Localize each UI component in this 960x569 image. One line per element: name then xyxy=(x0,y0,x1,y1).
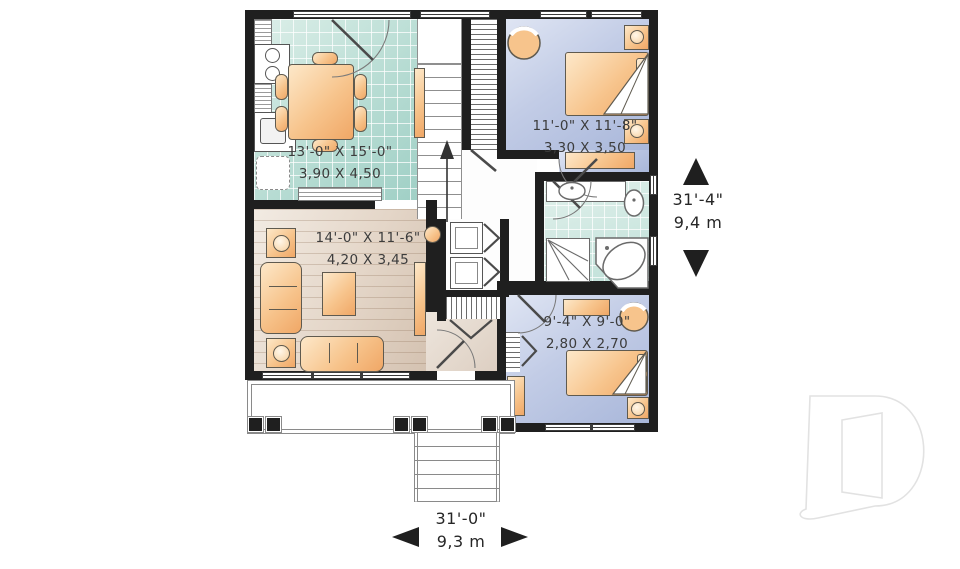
sofa-cushion-line xyxy=(269,309,297,310)
pillow xyxy=(636,58,647,84)
coat-closet xyxy=(446,297,500,319)
dining-chair xyxy=(275,106,288,132)
window-bathroom-east-b xyxy=(650,236,657,266)
sofa-cushion-line xyxy=(357,343,358,363)
window-bedroom-top-b xyxy=(591,11,642,18)
dimension-arrow-down-icon xyxy=(683,250,709,277)
porch-post xyxy=(482,417,497,432)
washer xyxy=(450,222,483,254)
overall-depth-imperial: 31'-4" xyxy=(662,188,734,211)
dining-room-label: 13'-0" X 15'-0" 3,90 X 4,50 xyxy=(250,142,430,185)
front-door-opening xyxy=(437,371,475,380)
pillow xyxy=(637,354,647,374)
bedroom-top-label: 11'-0" X 11'-8" 3,30 X 3,50 xyxy=(505,116,665,159)
nightstand xyxy=(627,397,649,419)
wall-laundry-south xyxy=(437,290,509,297)
sofa-cushion-line xyxy=(269,286,297,287)
wall-bathroom-north xyxy=(535,172,658,181)
bathroom-vanity xyxy=(546,181,626,202)
dimension-arrow-right-icon xyxy=(501,527,528,547)
window-mullion xyxy=(360,372,363,379)
wall-laundry-east xyxy=(500,219,509,281)
dining-room-dimensions-metric: 3,90 X 4,50 xyxy=(250,164,430,186)
living-room-dimensions-imperial: 14'-0" X 11'-6" xyxy=(288,228,448,250)
bedroom-top-dimensions-metric: 3,30 X 3,50 xyxy=(505,138,665,160)
window-bathroom-east-a xyxy=(650,175,657,195)
overall-width-dimension: 31'-0" 9,3 m xyxy=(418,507,504,553)
coffee-table xyxy=(322,272,356,316)
bedroom-bottom-dimensions-metric: 2,80 X 2,70 xyxy=(512,334,662,356)
shower xyxy=(546,238,590,282)
dining-chair xyxy=(354,74,367,100)
sofa-left xyxy=(260,262,302,334)
dryer-door xyxy=(455,262,478,284)
overall-depth-dimension: 31'-4" 9,4 m xyxy=(662,188,734,234)
nightstand xyxy=(624,25,649,50)
table-lamp xyxy=(273,235,290,252)
bedroom-top-closet xyxy=(471,19,497,150)
porch xyxy=(247,380,515,434)
window-mullion xyxy=(311,372,314,379)
living-room-dimensions-metric: 4,20 X 3,45 xyxy=(288,250,448,272)
dining-table xyxy=(288,64,354,140)
table-lamp xyxy=(273,345,290,362)
kitchen-bar-counter xyxy=(298,187,382,201)
overall-width-imperial: 31'-0" xyxy=(418,507,504,530)
wall-bathroom-west xyxy=(535,172,544,281)
bedroom-bottom-label: 9'-4" X 9'-0" 2,80 X 2,70 xyxy=(512,312,662,355)
media-unit xyxy=(414,262,426,336)
window-kitchen-north xyxy=(293,11,411,18)
window-living-south xyxy=(262,372,410,379)
dining-chair xyxy=(354,106,367,132)
porch-post xyxy=(500,417,515,432)
pillow xyxy=(637,374,647,394)
living-room-label: 14'-0" X 11'-6" 4,20 X 3,45 xyxy=(288,228,448,271)
dining-chair xyxy=(312,52,338,65)
stair-landing xyxy=(417,19,462,64)
bed-bottom xyxy=(566,350,648,396)
wall-east xyxy=(649,10,658,432)
window-mullion xyxy=(590,424,593,431)
sofa-front xyxy=(300,336,384,372)
nightstand-lamp xyxy=(631,402,645,416)
overall-width-metric: 9,3 m xyxy=(418,530,504,553)
wall-stairs-closet xyxy=(462,19,471,150)
sofa-cushion-line xyxy=(329,343,330,363)
wall-bedroom-bottom-north xyxy=(497,281,658,295)
overall-depth-metric: 9,4 m xyxy=(662,211,734,234)
nightstand-lamp xyxy=(630,30,644,44)
stove-burner xyxy=(265,48,280,63)
wall-kitchen-living xyxy=(245,200,375,209)
porch-post xyxy=(412,417,427,432)
porch-post xyxy=(248,417,263,432)
washer-door xyxy=(455,227,478,249)
dining-room-dimensions-imperial: 13'-0" X 15'-0" xyxy=(250,142,430,164)
porch-post xyxy=(394,417,409,432)
pillow xyxy=(636,86,647,112)
buffet-cabinet xyxy=(414,68,425,138)
entry-steps xyxy=(414,432,500,502)
dryer xyxy=(450,257,483,289)
builder-logo-d-icon xyxy=(780,386,958,528)
end-table xyxy=(266,338,296,368)
bedroom-top-dimensions-imperial: 11'-0" X 11'-8" xyxy=(505,116,665,138)
window-bedroom-top-a xyxy=(540,11,587,18)
dimension-arrow-up-icon xyxy=(683,158,709,185)
window-stairs-north xyxy=(420,11,490,18)
dimension-arrow-left-icon xyxy=(392,527,419,547)
wall-west xyxy=(245,10,254,380)
dining-chair xyxy=(275,74,288,100)
bedroom-bottom-dimensions-imperial: 9'-4" X 9'-0" xyxy=(512,312,662,334)
porch-post xyxy=(266,417,281,432)
floor-plan-canvas: 13'-0" X 15'-0" 3,90 X 4,50 11'-0" X 11'… xyxy=(0,0,960,569)
window-bedroom-bottom-south xyxy=(545,424,635,431)
